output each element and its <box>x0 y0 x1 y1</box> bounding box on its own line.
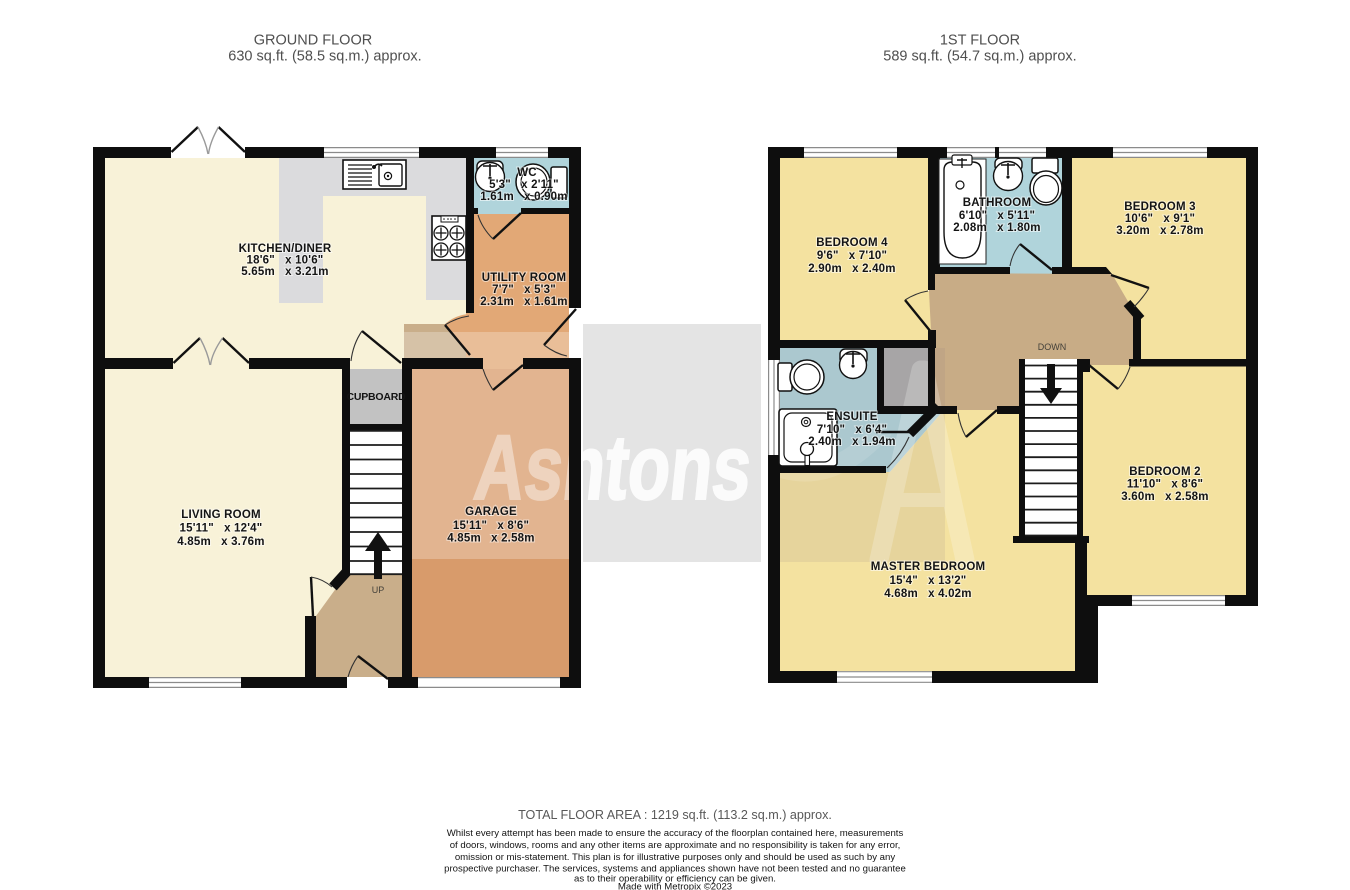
svg-text:4.85m x 3.76m: 4.85m x 3.76m <box>177 536 264 548</box>
svg-text:15'11" x 8'6": 15'11" x 8'6" <box>453 520 529 532</box>
svg-text:1ST FLOOR: 1ST FLOOR <box>940 33 1020 49</box>
svg-text:7'10" x 6'4": 7'10" x 6'4" <box>817 424 887 436</box>
svg-text:15'11" x 12'4": 15'11" x 12'4" <box>180 523 263 535</box>
svg-text:UTILITY ROOM: UTILITY ROOM <box>482 272 567 284</box>
svg-text:4.85m x 2.58m: 4.85m x 2.58m <box>447 533 534 545</box>
svg-text:MASTER BEDROOM: MASTER BEDROOM <box>871 561 986 573</box>
svg-text:WC: WC <box>517 167 537 179</box>
svg-text:GROUND FLOOR: GROUND FLOOR <box>254 33 372 49</box>
svg-text:TOTAL FLOOR AREA : 1219 sq.ft.: TOTAL FLOOR AREA : 1219 sq.ft. (113.2 sq… <box>518 808 832 822</box>
svg-text:Made with Metropix ©2023: Made with Metropix ©2023 <box>618 882 732 890</box>
svg-text:11'10" x 8'6": 11'10" x 8'6" <box>1127 479 1203 491</box>
svg-text:LIVING ROOM: LIVING ROOM <box>181 509 261 521</box>
svg-text:BEDROOM 2: BEDROOM 2 <box>1129 466 1200 478</box>
svg-text:DOWN: DOWN <box>1038 342 1067 352</box>
svg-text:KITCHEN/DINER: KITCHEN/DINER <box>239 243 332 255</box>
svg-text:CUPBOARD: CUPBOARD <box>346 391 406 403</box>
svg-text:omission or mis-statement. Thi: omission or mis-statement. This plan is … <box>455 852 895 863</box>
svg-text:of doors, windows, rooms and a: of doors, windows, rooms and any other i… <box>450 840 901 851</box>
svg-text:BEDROOM 4: BEDROOM 4 <box>816 237 888 249</box>
svg-text:2.08m x 1.80m: 2.08m x 1.80m <box>953 222 1040 234</box>
svg-text:4.68m x 4.02m: 4.68m x 4.02m <box>884 588 971 600</box>
svg-text:630 sq.ft. (58.5 sq.m.) approx: 630 sq.ft. (58.5 sq.m.) approx. <box>228 49 421 65</box>
svg-text:2.90m x 2.40m: 2.90m x 2.40m <box>808 263 895 275</box>
svg-text:5.65m x 3.21m: 5.65m x 3.21m <box>241 266 328 278</box>
svg-text:18'6" x 10'6": 18'6" x 10'6" <box>247 255 324 267</box>
svg-text:1.61m x 0.90m: 1.61m x 0.90m <box>480 191 567 203</box>
svg-text:9'6" x 7'10": 9'6" x 7'10" <box>817 250 887 262</box>
svg-text:Whilst every attempt has been: Whilst every attempt has been made to en… <box>447 828 904 839</box>
svg-text:5'3" x 2'11": 5'3" x 2'11" <box>489 179 559 191</box>
svg-text:3.20m x 2.78m: 3.20m x 2.78m <box>1116 225 1203 237</box>
svg-text:ENSUITE: ENSUITE <box>826 411 877 423</box>
svg-text:15'4" x 13'2": 15'4" x 13'2" <box>890 575 967 587</box>
svg-text:BATHROOM: BATHROOM <box>963 197 1031 209</box>
svg-text:2.31m x 1.61m: 2.31m x 1.61m <box>480 296 567 308</box>
svg-text:UP: UP <box>372 585 385 595</box>
svg-text:BEDROOM 3: BEDROOM 3 <box>1124 201 1195 213</box>
svg-text:589 sq.ft. (54.7 sq.m.) approx: 589 sq.ft. (54.7 sq.m.) approx. <box>883 49 1076 65</box>
svg-text:6'10" x 5'11": 6'10" x 5'11" <box>959 210 1035 222</box>
svg-text:GARAGE: GARAGE <box>465 506 517 518</box>
svg-text:3.60m x 2.58m: 3.60m x 2.58m <box>1121 491 1208 503</box>
svg-text:7'7" x 5'3": 7'7" x 5'3" <box>492 284 556 296</box>
svg-text:10'6" x 9'1": 10'6" x 9'1" <box>1125 213 1195 225</box>
svg-text:2.40m x 1.94m: 2.40m x 1.94m <box>808 436 895 448</box>
